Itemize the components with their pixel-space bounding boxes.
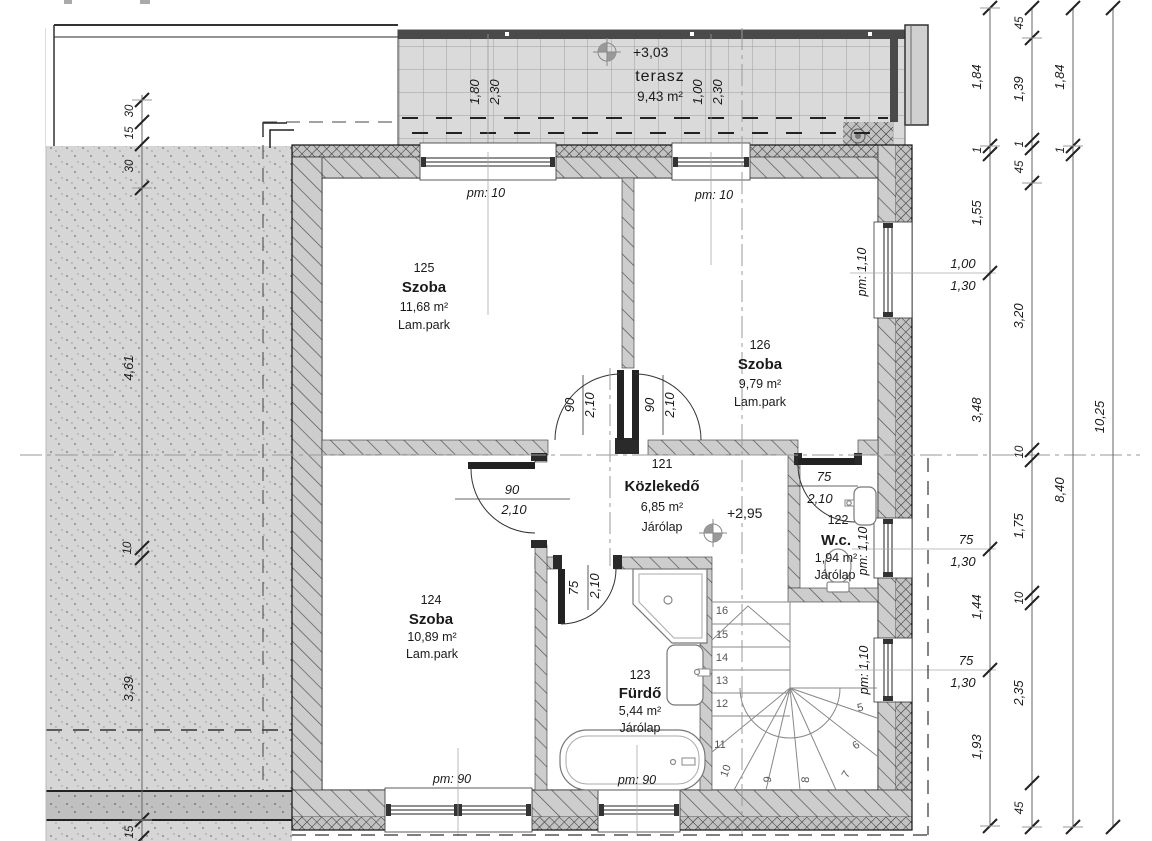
svg-text:Közlekedő: Közlekedő xyxy=(624,478,699,495)
svg-text:30: 30 xyxy=(124,159,136,172)
svg-text:10: 10 xyxy=(122,541,134,554)
terrace-railing-right xyxy=(890,30,898,122)
svg-text:Lam.park: Lam.park xyxy=(406,647,459,661)
svg-text:5,44 m²: 5,44 m² xyxy=(619,704,661,718)
svg-text:121: 121 xyxy=(652,457,673,471)
terrace-level: +3,03 xyxy=(633,44,669,60)
svg-text:10: 10 xyxy=(1014,445,1026,458)
svg-text:123: 123 xyxy=(630,668,651,682)
floor-plan-svg: +3,03 terasz 9,43 m² 1,80 2,30 1,00 2,30 xyxy=(0,0,1152,841)
svg-text:1,00: 1,00 xyxy=(690,79,705,105)
pm-label-right-b: pm: 1,10 xyxy=(856,527,870,577)
svg-text:Járólap: Járólap xyxy=(815,568,856,582)
svg-text:1: 1 xyxy=(972,147,984,153)
svg-text:Szoba: Szoba xyxy=(738,356,783,373)
svg-text:1,00: 1,00 xyxy=(950,256,976,271)
svg-text:6,85 m²: 6,85 m² xyxy=(641,500,683,514)
svg-text:15: 15 xyxy=(716,629,728,641)
svg-text:45: 45 xyxy=(1014,801,1026,814)
svg-text:45: 45 xyxy=(1014,160,1026,173)
svg-text:90: 90 xyxy=(505,482,520,497)
svg-text:14: 14 xyxy=(716,652,728,664)
svg-text:1,84: 1,84 xyxy=(1052,64,1067,89)
pm-label-right-a: pm: 1,10 xyxy=(855,248,869,298)
terrace-name: terasz xyxy=(635,68,685,85)
svg-text:2,35: 2,35 xyxy=(1011,680,1026,707)
svg-text:1,39: 1,39 xyxy=(1011,76,1026,101)
svg-text:8,40: 8,40 xyxy=(1052,477,1067,503)
terrace-area: 9,43 m² xyxy=(637,89,683,104)
svg-text:12: 12 xyxy=(716,698,728,710)
dimension-chain-right-3: 1,84 1 8,40 xyxy=(1052,1,1083,834)
svg-text:3,20: 3,20 xyxy=(1011,303,1026,329)
window-dim-fractions-right: 1,00 1,30 75 1,30 75 1,30 xyxy=(950,256,976,690)
svg-text:1,84: 1,84 xyxy=(969,64,984,89)
pm-label-right-c: pm: 1,10 xyxy=(857,646,871,696)
svg-text:2,10: 2,10 xyxy=(587,573,602,600)
svg-text:1,44: 1,44 xyxy=(969,594,984,619)
svg-text:16: 16 xyxy=(716,605,728,617)
svg-text:2,10: 2,10 xyxy=(806,491,833,506)
svg-text:1,93: 1,93 xyxy=(969,734,984,760)
svg-text:11: 11 xyxy=(714,739,725,751)
svg-text:2,30: 2,30 xyxy=(710,79,725,106)
svg-text:9,79 m²: 9,79 m² xyxy=(739,377,781,391)
svg-text:Szoba: Szoba xyxy=(409,611,454,628)
washbasin-icon xyxy=(667,645,710,705)
hall-level: +2,95 xyxy=(727,505,763,521)
svg-text:15: 15 xyxy=(124,126,136,139)
building-walls xyxy=(292,145,912,830)
svg-text:10,25: 10,25 xyxy=(1092,400,1107,433)
left-terrain-area xyxy=(46,28,292,841)
svg-text:2,10: 2,10 xyxy=(500,502,527,517)
svg-text:122: 122 xyxy=(828,513,849,527)
window-room126-right xyxy=(874,222,912,318)
truncated-top-text xyxy=(140,0,150,4)
truncated-top-text xyxy=(64,0,72,4)
svg-text:10,89 m²: 10,89 m² xyxy=(407,630,456,644)
svg-text:75: 75 xyxy=(566,580,581,595)
svg-text:1,80: 1,80 xyxy=(467,79,482,105)
svg-text:45: 45 xyxy=(1014,16,1026,29)
svg-text:Szoba: Szoba xyxy=(402,279,447,296)
svg-text:2,10: 2,10 xyxy=(662,392,677,419)
dimension-chain-right-1: 1,84 1 1,55 3,48 1,44 1,93 xyxy=(969,1,1000,833)
svg-text:75: 75 xyxy=(959,653,974,668)
svg-text:15: 15 xyxy=(124,825,136,838)
svg-text:13: 13 xyxy=(716,675,728,687)
svg-text:1: 1 xyxy=(1055,147,1067,153)
svg-text:1,30: 1,30 xyxy=(950,554,976,569)
svg-text:8: 8 xyxy=(800,776,812,783)
svg-text:Lam.park: Lam.park xyxy=(734,395,787,409)
svg-text:3,48: 3,48 xyxy=(969,397,984,423)
svg-text:30: 30 xyxy=(124,104,136,117)
svg-text:4,61: 4,61 xyxy=(121,355,136,380)
svg-text:3,39: 3,39 xyxy=(121,676,136,701)
pm-label-bottom-a: pm: 90 xyxy=(432,772,471,786)
floor-plan-drawing: +3,03 terasz 9,43 m² 1,80 2,30 1,00 2,30 xyxy=(0,0,1152,841)
svg-text:126: 126 xyxy=(750,338,771,352)
pm-label-window126: pm: 10 xyxy=(694,188,733,202)
svg-text:1,30: 1,30 xyxy=(950,675,976,690)
svg-text:Lam.park: Lam.park xyxy=(398,318,451,332)
svg-text:90: 90 xyxy=(642,397,657,412)
svg-text:10: 10 xyxy=(1014,591,1026,604)
corner-pillar xyxy=(905,25,928,125)
svg-text:1,30: 1,30 xyxy=(950,278,976,293)
svg-text:1: 1 xyxy=(1014,141,1026,147)
svg-text:W.c.: W.c. xyxy=(821,532,851,549)
svg-text:1,55: 1,55 xyxy=(969,200,984,226)
window-room124-bottom xyxy=(385,788,532,832)
pm-label-bottom-b: pm: 90 xyxy=(617,773,656,787)
svg-text:75: 75 xyxy=(817,469,832,484)
pm-label-window125: pm: 10 xyxy=(466,186,505,200)
dimension-chain-right-4: 10,25 xyxy=(1092,1,1120,834)
svg-text:Járólap: Járólap xyxy=(620,721,661,735)
terrace-railing xyxy=(398,30,905,39)
svg-text:1,75: 1,75 xyxy=(1011,513,1026,539)
svg-text:Fürdő: Fürdő xyxy=(619,685,662,702)
dimension-chain-right-2: 45 1,39 1 45 3,20 10 1,75 10 2,35 45 xyxy=(1011,1,1042,834)
svg-text:11,68 m²: 11,68 m² xyxy=(400,300,448,314)
svg-text:Járólap: Járólap xyxy=(642,520,683,534)
svg-text:2,30: 2,30 xyxy=(487,79,502,106)
svg-text:125: 125 xyxy=(414,261,435,275)
window-wc-right xyxy=(874,518,912,578)
lower-roof-panel xyxy=(46,0,398,146)
svg-text:2,10: 2,10 xyxy=(582,392,597,419)
svg-text:90: 90 xyxy=(562,397,577,412)
svg-text:124: 124 xyxy=(421,593,442,607)
svg-text:75: 75 xyxy=(959,532,974,547)
svg-text:1,94 m²: 1,94 m² xyxy=(815,551,857,565)
window-bath-bottom xyxy=(598,788,680,832)
